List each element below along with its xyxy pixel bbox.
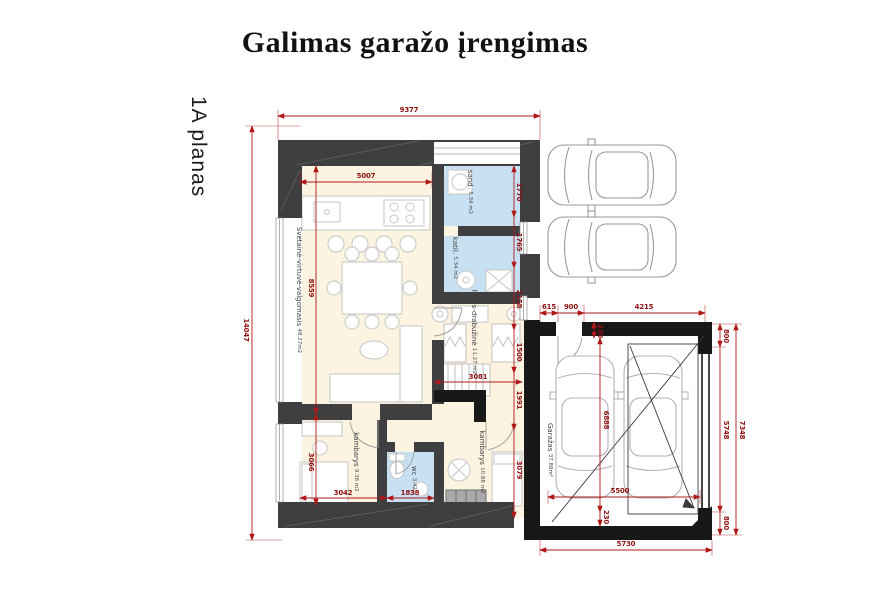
- dim-right-1991: 1991: [515, 391, 523, 410]
- car-bottom: [548, 211, 676, 283]
- dim-overall-height: 14047: [242, 318, 250, 341]
- dim-garage-4215: 4215: [635, 303, 654, 311]
- garage-door-side: [702, 354, 709, 508]
- garage-car-right: [618, 356, 688, 498]
- dim-right-1770: 1770: [515, 183, 523, 202]
- cars-outside: [548, 139, 676, 283]
- label-room1: kambarys 9.36 m2: [352, 432, 360, 492]
- dim-room1-width: 3042: [334, 489, 353, 497]
- bar-stool: [400, 236, 416, 252]
- dim-garage-900: 900: [564, 303, 578, 311]
- dim-garage-800-top: 800: [722, 329, 730, 343]
- dim-wc-width: 1838: [401, 489, 420, 497]
- coffee-table: [360, 341, 388, 359]
- dim-garage-230-top: 230: [596, 324, 604, 338]
- dim-right-1765: 1765: [515, 233, 523, 252]
- bar-stool: [328, 236, 344, 252]
- dim-right-2158: 2158: [515, 290, 523, 309]
- car-top: [548, 139, 676, 211]
- dim-right-3079: 3079: [515, 461, 523, 480]
- dim-kitchen-width: 5007: [357, 172, 376, 180]
- label-boiler-room: katil. 5.34 m2: [451, 237, 459, 279]
- label-living-room: Svetainė-virtuvė-valgomasis 48.27m2: [295, 227, 303, 353]
- toilet-tank: [389, 454, 405, 461]
- dim-overall-width: 9377: [400, 106, 419, 114]
- stove: [384, 200, 424, 226]
- dim-room1-height: 3066: [307, 453, 315, 472]
- dim-living-height: 8559: [307, 279, 315, 298]
- dim-garage-615: 615: [542, 303, 556, 311]
- floor-plan-page: Galimas garažo įrengimas 1A planas: [0, 0, 871, 608]
- dim-garage-230-bottom: 230: [602, 510, 610, 524]
- floor-plan-drawing: [0, 0, 871, 608]
- dim-garage-7348: 7348: [738, 421, 746, 440]
- label-garage: Garažas 37.88m²: [546, 423, 554, 477]
- dim-garage-5730: 5730: [617, 540, 636, 548]
- dim-garage-6888: 6888: [602, 411, 610, 430]
- dim-garage-5500: 5500: [611, 487, 630, 495]
- dim-hall-width: 3081: [469, 373, 488, 381]
- toilet: [390, 462, 404, 479]
- label-wc: wc 3.42: [410, 466, 418, 490]
- dining-table: [342, 262, 402, 314]
- cars-in-garage: [550, 356, 688, 498]
- dim-garage-800-bottom: 800: [722, 516, 730, 530]
- dim-garage-5748: 5748: [722, 421, 730, 440]
- dim-right-1500: 1500: [515, 343, 523, 362]
- label-hall-wardrobe: holas-drabužinė 11.27 m2: [470, 290, 478, 375]
- desk: [302, 422, 342, 436]
- label-storage-room: sand. 5.34 m2: [466, 170, 474, 214]
- label-room2: kambarys 10.88 m2: [478, 430, 486, 493]
